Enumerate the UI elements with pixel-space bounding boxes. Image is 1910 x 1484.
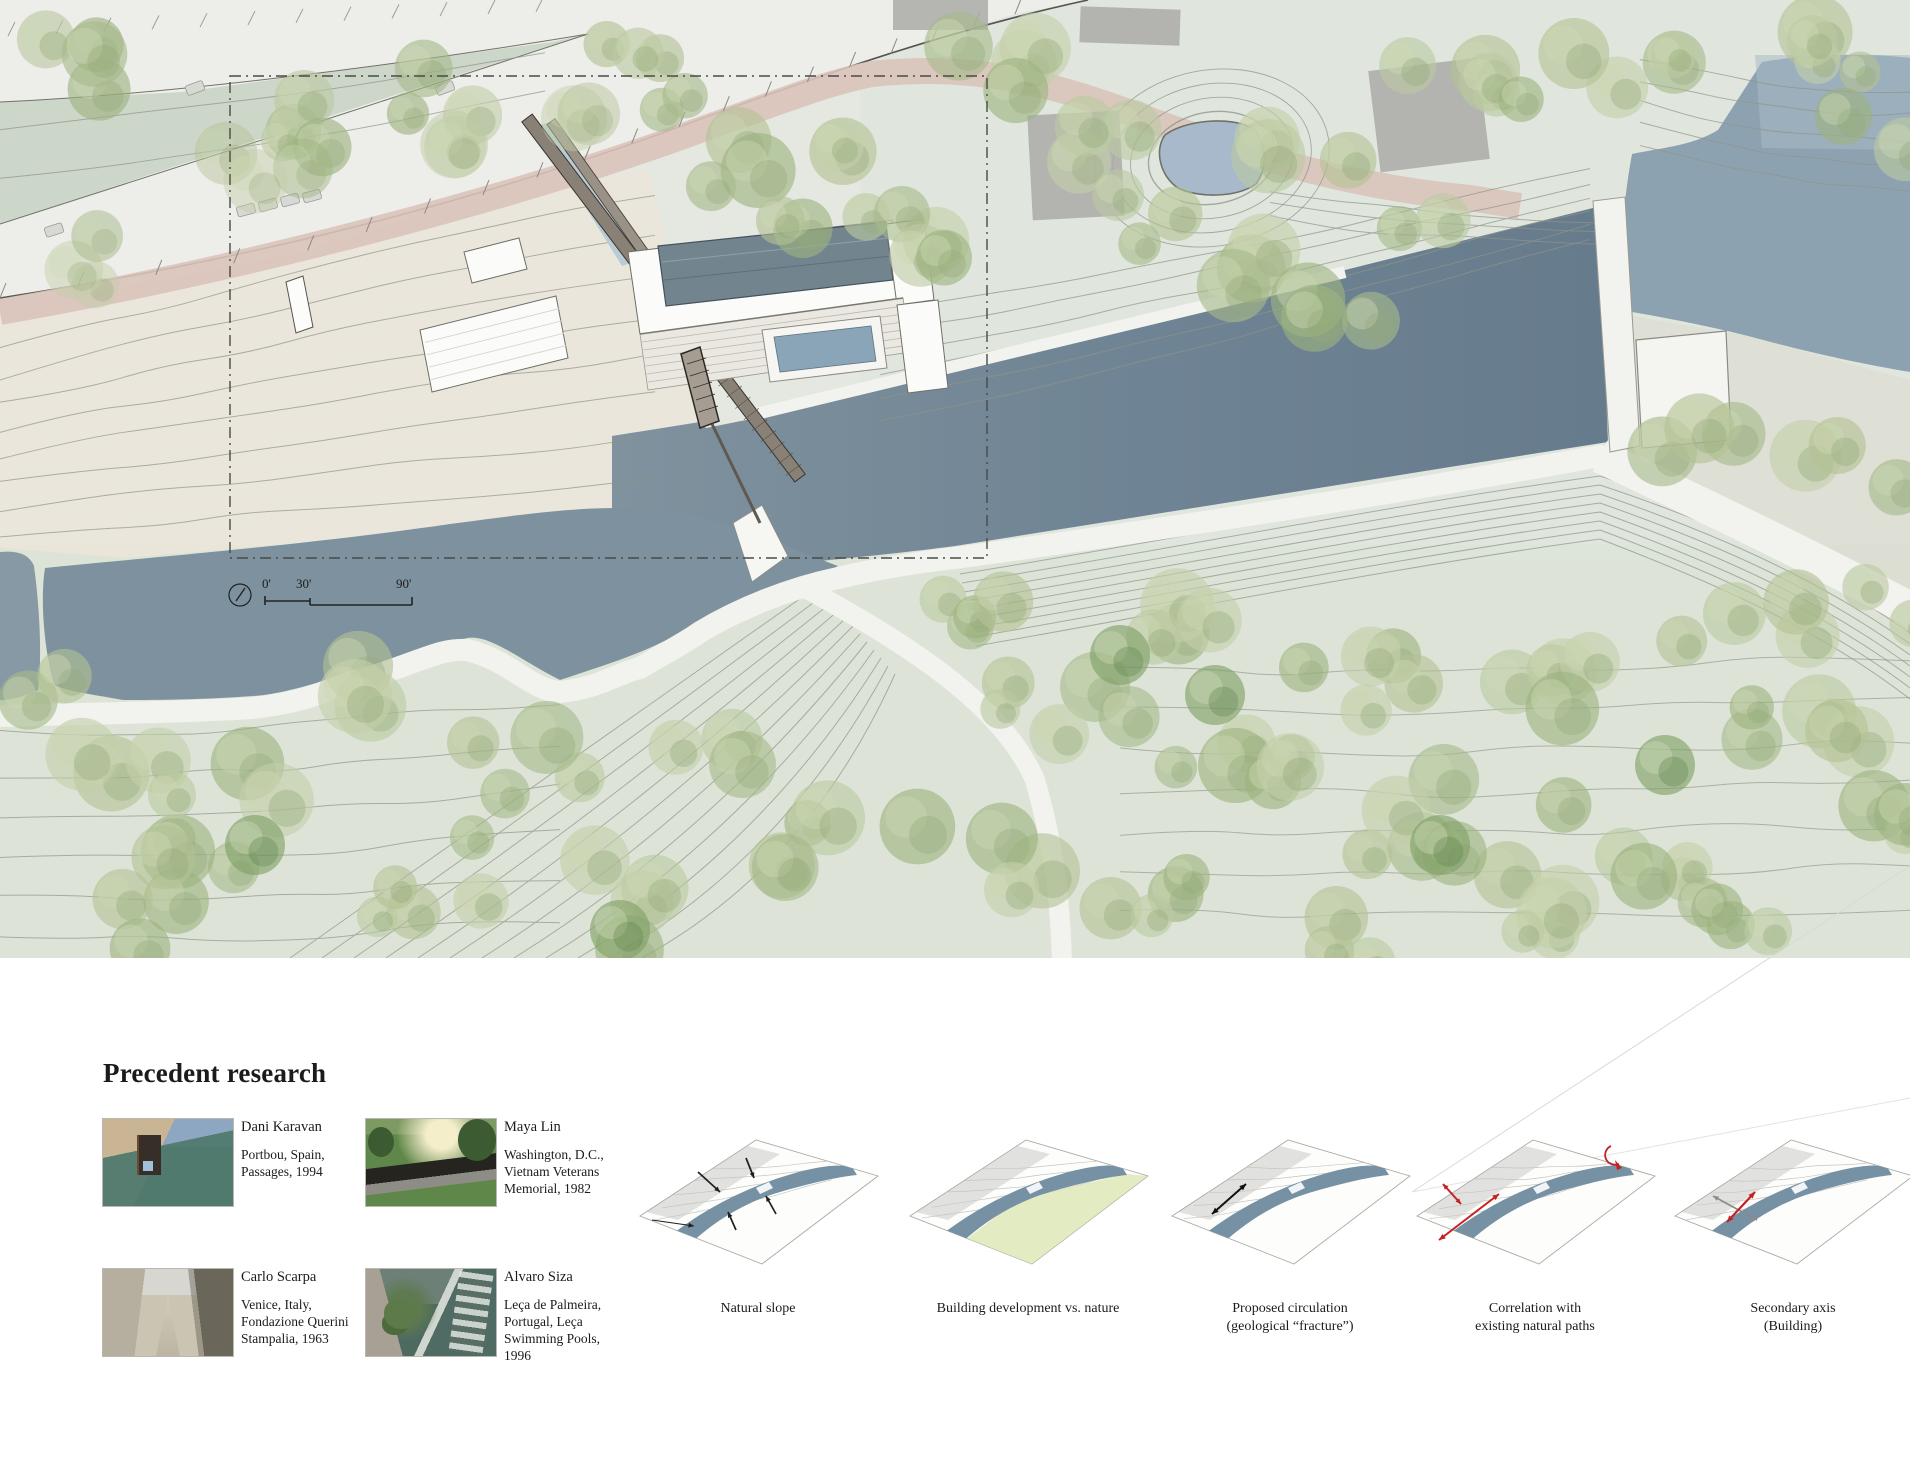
precedent-location-line: Leça de Palmeira, [504, 1296, 626, 1313]
diagram-label: Proposed circulation(geological “fractur… [1155, 1300, 1425, 1335]
precedent-caption: Alvaro SizaLeça de Palmeira,Portugal, Le… [504, 1269, 626, 1364]
diagram-label: Building development vs. nature [893, 1300, 1163, 1318]
diagram-label-line: Proposed circulation [1155, 1300, 1425, 1318]
precedent-location-line: Portugal, Leça [504, 1313, 626, 1330]
diagram-label: Natural slope [623, 1300, 893, 1318]
presentation-board: 0'30'90' Precedent research Dani Karavan… [0, 0, 1910, 1484]
diagram-label-line: (Building) [1658, 1318, 1910, 1336]
diagram-label-line: Correlation with [1400, 1300, 1670, 1318]
precedent-card: Dani KaravanPortbou, Spain,Passages, 199… [103, 1119, 363, 1259]
diagram-thumb-natural-paths-correlation [1405, 1132, 1665, 1282]
diagram-thumb-proposed-circulation [1160, 1132, 1420, 1282]
precedent-location-line: Portbou, Spain, [241, 1146, 363, 1163]
precedent-location-line: Fondazione Querini [241, 1313, 363, 1330]
diagram-thumb-natural-slope [628, 1132, 888, 1282]
diagram-label-line: existing natural paths [1400, 1318, 1670, 1336]
precedent-photo-siza [366, 1269, 496, 1356]
precedent-location-line: Passages, 1994 [241, 1163, 363, 1180]
precedent-name: Carlo Scarpa [241, 1269, 363, 1286]
precedent-card: Alvaro SizaLeça de Palmeira,Portugal, Le… [366, 1269, 626, 1409]
precedent-caption: Carlo ScarpaVenice, Italy,Fondazione Que… [241, 1269, 363, 1347]
precedent-name: Alvaro Siza [504, 1269, 626, 1286]
site-plan-map: 0'30'90' [0, 0, 1910, 958]
precedent-photo-karavan [103, 1119, 233, 1206]
precedent-name: Maya Lin [504, 1119, 626, 1136]
precedent-location-line: Vietnam Veterans [504, 1163, 626, 1180]
diagram-label: Secondary axis(Building) [1658, 1300, 1910, 1335]
precedent-name: Dani Karavan [241, 1119, 363, 1136]
precedent-card: Maya LinWashington, D.C.,Vietnam Veteran… [366, 1119, 626, 1259]
precedent-photo-scarpa [103, 1269, 233, 1356]
precedent-location-line: 1996 [504, 1347, 626, 1364]
precedent-photo-lin [366, 1119, 496, 1206]
scale-label-90: 90' [396, 576, 411, 591]
precedent-card: Carlo ScarpaVenice, Italy,Fondazione Que… [103, 1269, 363, 1409]
diagram-label-line: (geological “fracture”) [1155, 1318, 1425, 1336]
diagram-thumb-secondary-axis [1663, 1132, 1910, 1282]
precedent-location-line: Washington, D.C., [504, 1146, 626, 1163]
scale-label-30: 30' [296, 576, 311, 591]
precedent-location-line: Venice, Italy, [241, 1296, 363, 1313]
precedent-caption: Maya LinWashington, D.C.,Vietnam Veteran… [504, 1119, 626, 1197]
diagram-label-line: Natural slope [623, 1300, 893, 1318]
precedent-location-line: Stampalia, 1963 [241, 1330, 363, 1347]
scale-label-0: 0' [262, 576, 271, 591]
diagram-label-line: Secondary axis [1658, 1300, 1910, 1318]
diagram-label: Correlation withexisting natural paths [1400, 1300, 1670, 1335]
precedent-caption: Dani KaravanPortbou, Spain,Passages, 199… [241, 1119, 363, 1180]
precedent-location-line: Memorial, 1982 [504, 1180, 626, 1197]
precedent-research-title: Precedent research [103, 1058, 326, 1089]
diagram-thumb-development-vs-nature [898, 1132, 1158, 1282]
diagram-label-line: Building development vs. nature [893, 1300, 1163, 1318]
precedent-location-line: Swimming Pools, [504, 1330, 626, 1347]
